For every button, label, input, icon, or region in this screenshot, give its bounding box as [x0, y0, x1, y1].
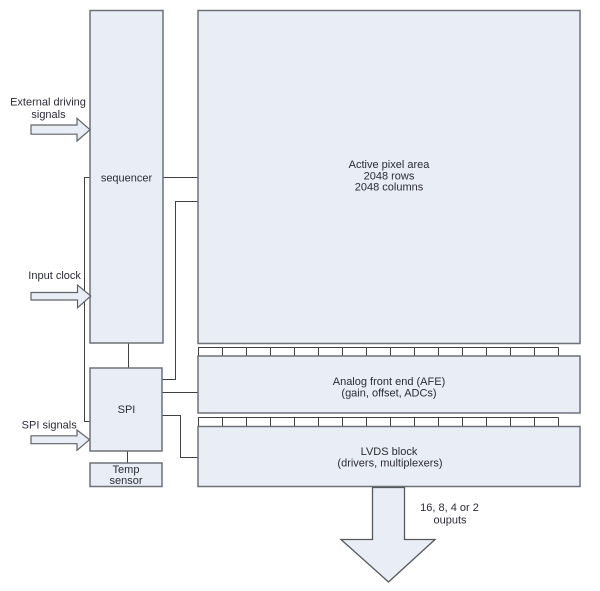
svg-text:sequencer: sequencer — [101, 173, 153, 185]
svg-text:16, 8, 4 or 2: 16, 8, 4 or 2 — [420, 502, 479, 514]
svg-text:Active pixel area: Active pixel area — [349, 159, 431, 171]
svg-text:signals: signals — [31, 109, 66, 121]
svg-text:SPI: SPI — [118, 404, 136, 416]
svg-text:(drivers, multiplexers): (drivers, multiplexers) — [337, 458, 442, 470]
svg-text:Analog front end (AFE): Analog front end (AFE) — [333, 376, 446, 388]
svg-text:External driving: External driving — [10, 97, 86, 109]
svg-text:ouputs: ouputs — [433, 515, 467, 527]
svg-text:(gain, offset, ADCs): (gain, offset, ADCs) — [341, 388, 436, 400]
svg-text:sensor: sensor — [109, 475, 142, 487]
svg-text:LVDS block: LVDS block — [361, 446, 418, 458]
svg-text:SPI signals: SPI signals — [22, 419, 78, 431]
svg-text:2048 columns: 2048 columns — [355, 182, 424, 194]
svg-text:Input clock: Input clock — [28, 270, 81, 282]
